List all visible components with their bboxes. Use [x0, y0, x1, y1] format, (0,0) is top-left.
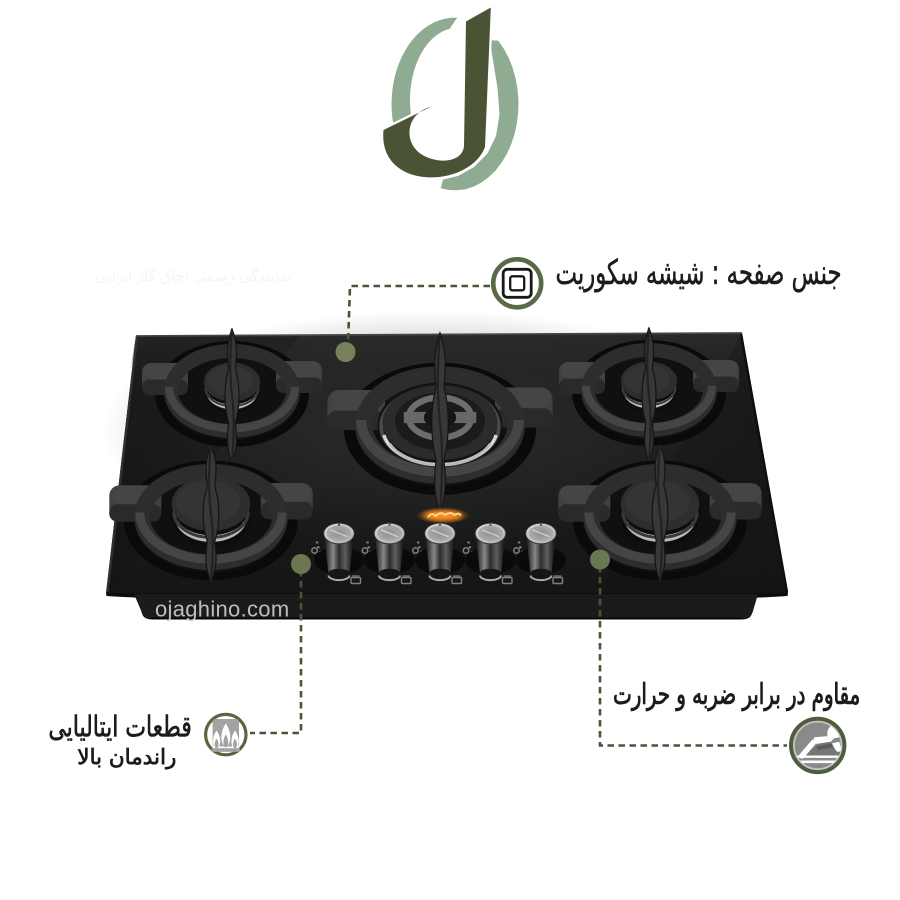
svg-text:نمایندگی رسمی اجاق گاز ایرانی: نمایندگی رسمی اجاق گاز ایرانی: [95, 267, 292, 285]
svg-text:ojaghino.com: ojaghino.com: [155, 597, 289, 622]
